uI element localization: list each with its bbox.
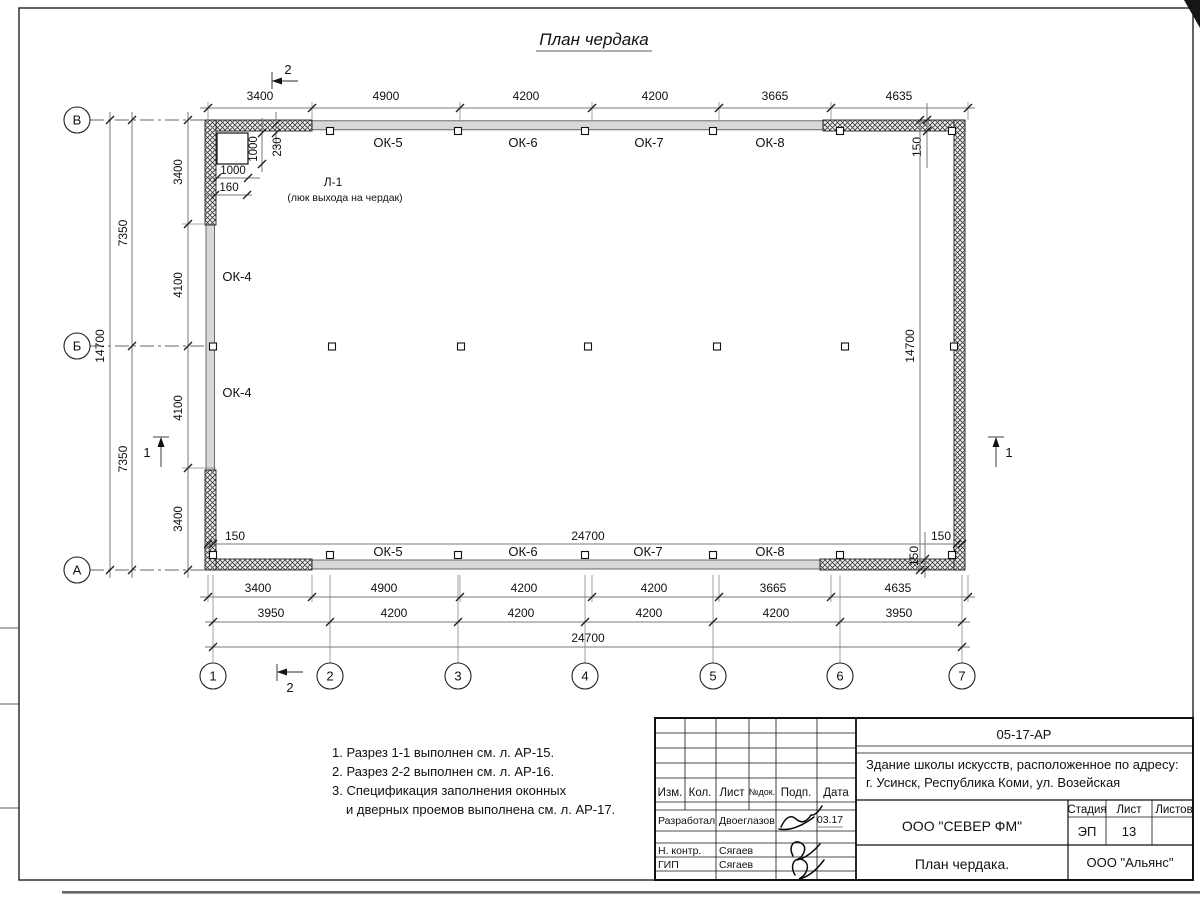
section-mark-2-bottom: 2 xyxy=(277,664,303,695)
note-line: 3. Спецификация заполнения оконных xyxy=(332,783,567,798)
dim-label: 160 xyxy=(219,182,238,194)
dim-label: 4200 xyxy=(508,606,535,620)
dim-label: 4900 xyxy=(371,581,398,595)
hatch-sublabel: (люк выхода на чердак) xyxy=(287,192,402,204)
drawing-title: План чердака. xyxy=(915,856,1009,872)
dim-label: 3400 xyxy=(247,89,274,103)
dim-label: 4200 xyxy=(513,89,540,103)
dim-label: 14700 xyxy=(93,329,107,363)
col-header: №док. xyxy=(749,787,775,797)
dim-label: 3665 xyxy=(762,89,789,103)
drawing-sheet: План чердака xyxy=(0,0,1200,900)
role-label: Н. контр. xyxy=(658,845,701,857)
person-name: Сягаев xyxy=(719,845,754,857)
right-height-dimension: 14700 xyxy=(903,116,924,574)
window-label: ОК-6 xyxy=(508,135,537,150)
section-mark-1-right: 1 xyxy=(988,437,1013,467)
window-label: ОК-5 xyxy=(373,544,402,559)
section-mark-2-top: 2 xyxy=(272,62,298,89)
axis-label: 1 xyxy=(209,669,216,684)
window-label: ОК-4 xyxy=(222,385,251,400)
dim-label: 1000 xyxy=(248,136,260,162)
col-header: Кол. xyxy=(689,787,712,799)
dim-label: 14700 xyxy=(903,329,917,363)
dim-label: 24700 xyxy=(571,529,605,543)
dim-label: 4635 xyxy=(885,581,912,595)
hatch-label: Л-1 xyxy=(324,175,343,189)
column-axis-markers: 1 2 3 4 5 6 7 xyxy=(200,663,975,689)
axis-label: 3 xyxy=(454,669,461,684)
axis-label: 5 xyxy=(709,669,716,684)
dim-label: 3665 xyxy=(760,581,787,595)
axis-label: А xyxy=(73,563,82,578)
dim-label: 4200 xyxy=(642,89,669,103)
bottom-dimension-rows: 3400 4900 4200 4200 3665 4635 3950 4200 … xyxy=(200,575,975,663)
note-line: 1. Разрез 1-1 выполнен см. л. АР-15. xyxy=(332,745,554,760)
page-title: План чердака xyxy=(539,30,648,49)
dim-label: 24700 xyxy=(571,631,605,645)
hatch-opening xyxy=(217,133,248,164)
dim-label: 3400 xyxy=(173,159,185,185)
window-label: ОК-6 xyxy=(508,544,537,559)
role-label: Разработал xyxy=(658,815,715,827)
role-label: ГИП xyxy=(658,859,679,871)
top-window-band xyxy=(312,121,823,130)
date-value: 03.17 xyxy=(817,814,843,826)
col-header: Дата xyxy=(823,787,849,799)
bottom-window-band xyxy=(312,560,820,569)
window-label: ОК-5 xyxy=(373,135,402,150)
col-header: Лист xyxy=(720,787,746,799)
drawing-page-title: План чердака xyxy=(536,30,652,51)
dim-label: 3400 xyxy=(245,581,272,595)
notes-block: 1. Разрез 1-1 выполнен см. л. АР-15. 2. … xyxy=(332,745,615,817)
dim-label: 7350 xyxy=(116,445,130,472)
dim-label: 3950 xyxy=(258,606,285,620)
project-line1: Здание школы искусств, расположенное по … xyxy=(866,757,1179,772)
section-label: 1 xyxy=(143,445,150,460)
axis-label: 4 xyxy=(581,669,588,684)
doc-number: 05-17-АР xyxy=(997,727,1052,742)
dim-label: 4100 xyxy=(173,395,185,421)
window-label: ОК-8 xyxy=(755,544,784,559)
col-header: Подп. xyxy=(781,787,812,799)
dim-label: 150 xyxy=(910,137,924,157)
note-line: 2. Разрез 2-2 выполнен см. л. АР-16. xyxy=(332,764,554,779)
project-line2: г. Усинск, Республика Коми, ул. Возейска… xyxy=(866,775,1120,790)
stage-value: ЭП xyxy=(1078,824,1097,839)
dim-label: 1000 xyxy=(220,165,246,177)
dim-label: 4200 xyxy=(763,606,790,620)
dim-label: 3400 xyxy=(173,506,185,532)
window-label: ОК-4 xyxy=(222,269,251,284)
dim-label: 7350 xyxy=(116,219,130,246)
sheets-label: Листов xyxy=(1155,804,1192,816)
section-label: 2 xyxy=(286,680,293,695)
axis-label: 6 xyxy=(836,669,843,684)
dim-label: 3950 xyxy=(886,606,913,620)
note-line: и дверных проемов выполнена см. л. АР-17… xyxy=(346,802,615,817)
dim-label: 4100 xyxy=(173,272,185,298)
axis-label: 7 xyxy=(958,669,965,684)
dim-label: 4200 xyxy=(381,606,408,620)
sheet-label: Лист xyxy=(1117,804,1143,816)
dim-label: 4200 xyxy=(636,606,663,620)
dim-label: 4635 xyxy=(886,89,913,103)
col-header: Изм. xyxy=(658,787,683,799)
stage-label: Стадия xyxy=(1067,804,1106,816)
axis-label: 2 xyxy=(326,669,333,684)
person-name: Двоеглазов xyxy=(719,815,775,827)
dim-label: 150 xyxy=(931,529,951,543)
section-mark-1-left: 1 xyxy=(143,437,169,467)
dim-label: 4200 xyxy=(511,581,538,595)
dim-label: 230 xyxy=(272,137,284,156)
attic-plan-drawing: План чердака xyxy=(0,0,1200,900)
window-label: ОК-8 xyxy=(755,135,784,150)
company-name: ООО "СЕВЕР ФМ" xyxy=(902,818,1022,834)
company2-name: ООО "Альянс" xyxy=(1087,855,1174,870)
section-label: 1 xyxy=(1005,445,1012,460)
dim-label: 150 xyxy=(907,546,921,566)
dim-label: 4200 xyxy=(641,581,668,595)
row-axis-markers: В Б А xyxy=(64,107,90,583)
window-label: ОК-7 xyxy=(633,544,662,559)
axis-label: Б xyxy=(73,339,82,354)
sheet-frame xyxy=(0,8,1193,880)
title-block: 05-17-АР Здание школы искусств, располож… xyxy=(655,718,1193,880)
axis-label: В xyxy=(73,113,82,128)
dim-label: 150 xyxy=(225,529,245,543)
section-label: 2 xyxy=(284,62,291,77)
left-dimension-column: 3400 4100 4100 3400 7350 7350 14700 xyxy=(90,112,216,578)
person-name: Сягаев xyxy=(719,859,754,871)
sheet-value: 13 xyxy=(1122,824,1136,839)
dim-label: 4900 xyxy=(373,89,400,103)
window-label: ОК-7 xyxy=(634,135,663,150)
